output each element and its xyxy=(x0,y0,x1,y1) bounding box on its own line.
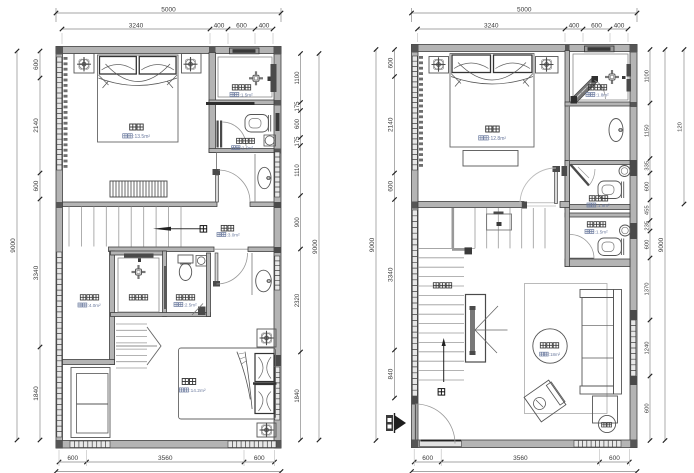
svg-text:9000: 9000 xyxy=(369,237,376,252)
svg-text:400: 400 xyxy=(259,22,270,29)
svg-text:9000: 9000 xyxy=(10,238,17,253)
svg-text:2320: 2320 xyxy=(295,293,301,307)
svg-text:1100: 1100 xyxy=(295,71,301,85)
svg-text:1840: 1840 xyxy=(295,389,301,403)
svg-text:5000: 5000 xyxy=(161,6,176,13)
svg-text:2140: 2140 xyxy=(33,118,40,133)
svg-text:3560: 3560 xyxy=(158,455,173,462)
svg-text:120: 120 xyxy=(678,122,684,132)
svg-text:455: 455 xyxy=(644,205,650,215)
svg-text:600: 600 xyxy=(644,403,650,413)
svg-text:1100: 1100 xyxy=(644,70,650,82)
svg-text::14.2m²: :14.2m² xyxy=(189,388,206,394)
svg-text:400: 400 xyxy=(569,22,580,29)
svg-text:600: 600 xyxy=(254,455,265,462)
svg-text:600: 600 xyxy=(236,22,247,29)
svg-text:3560: 3560 xyxy=(513,455,528,462)
svg-text:600: 600 xyxy=(388,57,395,68)
svg-text:3340: 3340 xyxy=(388,267,395,282)
svg-text:600: 600 xyxy=(422,455,433,462)
svg-text:600: 600 xyxy=(388,180,395,191)
svg-text:840: 840 xyxy=(388,368,395,379)
svg-text:5000: 5000 xyxy=(517,6,532,13)
svg-text:600: 600 xyxy=(609,455,620,462)
svg-text:600: 600 xyxy=(33,59,40,70)
svg-text:9000: 9000 xyxy=(658,237,665,252)
svg-text::4.0m²: :4.0m² xyxy=(88,303,101,308)
svg-text:235: 235 xyxy=(644,221,650,231)
svg-text:1840: 1840 xyxy=(33,386,40,401)
svg-text::2.5m²: :2.5m² xyxy=(241,146,254,151)
svg-text::1.8m²: :1.8m² xyxy=(596,93,609,98)
svg-text::3.0m²: :3.0m² xyxy=(227,233,240,238)
svg-text:3240: 3240 xyxy=(129,22,144,29)
svg-text:1240: 1240 xyxy=(644,342,650,355)
svg-text:600: 600 xyxy=(644,182,650,192)
svg-text:1150: 1150 xyxy=(644,125,650,137)
svg-text:1110: 1110 xyxy=(295,164,301,177)
svg-text:175: 175 xyxy=(295,101,301,112)
svg-text:600: 600 xyxy=(644,240,650,250)
svg-text::2.5m²: :2.5m² xyxy=(184,303,197,308)
svg-text::12.8m²: :12.8m² xyxy=(489,136,506,142)
svg-text:9000: 9000 xyxy=(312,239,319,254)
svg-text::1.9m²: :1.9m² xyxy=(597,203,610,208)
svg-text:400: 400 xyxy=(614,22,625,29)
svg-text:3340: 3340 xyxy=(33,265,40,280)
svg-text:900: 900 xyxy=(295,217,301,228)
svg-text:1370: 1370 xyxy=(644,283,650,296)
svg-text:600: 600 xyxy=(33,180,40,191)
svg-text:175: 175 xyxy=(295,136,301,147)
svg-text::18m²: :18m² xyxy=(549,352,561,357)
svg-text:600: 600 xyxy=(67,455,78,462)
svg-text:600: 600 xyxy=(591,22,602,29)
svg-text::1.5m²: :1.5m² xyxy=(240,93,253,98)
svg-text:400: 400 xyxy=(214,22,225,29)
svg-text:2140: 2140 xyxy=(388,117,395,132)
svg-text:600: 600 xyxy=(295,118,301,129)
svg-text:335: 335 xyxy=(644,161,650,171)
svg-text:3240: 3240 xyxy=(484,22,499,29)
svg-text::1.5m²: :1.5m² xyxy=(595,230,608,235)
svg-text::13.5m²: :13.5m² xyxy=(133,134,150,140)
